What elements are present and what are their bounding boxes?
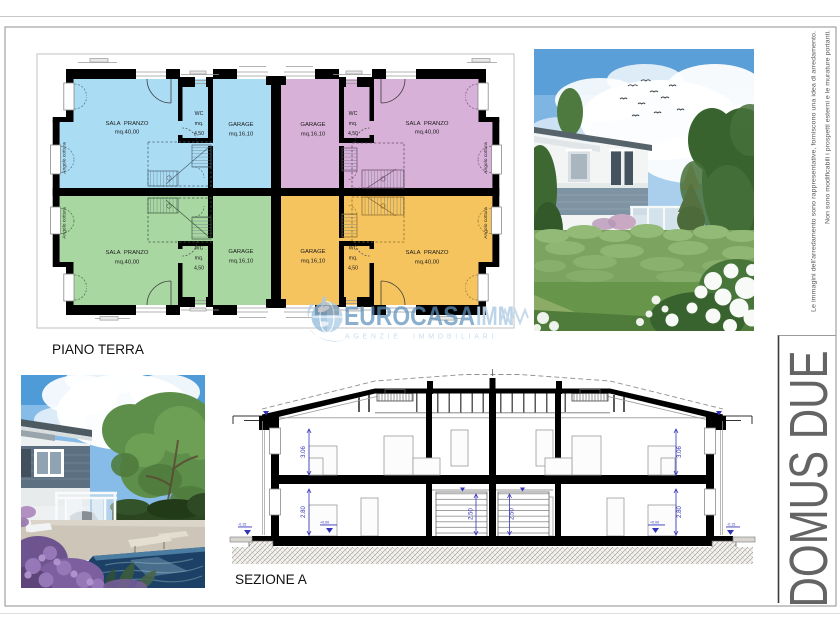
svg-text:mq.40,00: mq.40,00 — [415, 260, 440, 266]
svg-text:SALA PRANZO: SALA PRANZO — [406, 121, 449, 127]
svg-text:2.50: 2.50 — [469, 508, 475, 520]
svg-text:-0.15: -0.15 — [727, 523, 735, 527]
svg-text:SALA PRANZO: SALA PRANZO — [406, 250, 449, 256]
svg-text:WC: WC — [195, 111, 204, 117]
svg-text:WC: WC — [349, 246, 358, 252]
svg-text:3.06: 3.06 — [301, 446, 307, 458]
svg-text:4,50: 4,50 — [348, 266, 358, 272]
svg-text:Le immagini dell'arredamento s: Le immagini dell'arredamento sono rappre… — [811, 31, 818, 312]
svg-text:mq.16,10: mq.16,10 — [301, 259, 326, 265]
svg-text:GARAGE: GARAGE — [300, 122, 325, 128]
svg-text:SALA PRANZO: SALA PRANZO — [106, 250, 149, 256]
svg-text:WC: WC — [349, 111, 358, 117]
svg-text:mq.: mq. — [349, 121, 358, 127]
svg-text:mq.: mq. — [195, 256, 204, 262]
svg-text:GARAGE: GARAGE — [300, 249, 325, 255]
svg-text:4,50: 4,50 — [348, 131, 358, 137]
svg-text:Angolo cottura: Angolo cottura — [483, 207, 489, 239]
svg-text:2.80: 2.80 — [301, 506, 307, 518]
svg-text:3.06: 3.06 — [677, 446, 683, 458]
svg-text:GARAGE: GARAGE — [228, 249, 253, 255]
svg-text:mq.16,10: mq.16,10 — [229, 259, 254, 265]
svg-text:mq.16,10: mq.16,10 — [301, 132, 326, 138]
svg-text:mq.16,10: mq.16,10 — [229, 132, 254, 138]
svg-text:+0.00: +0.00 — [650, 521, 659, 525]
svg-text:mq.40,00: mq.40,00 — [115, 130, 140, 136]
svg-text:EUROCASA: EUROCASA — [344, 301, 475, 331]
svg-text:mq.: mq. — [195, 121, 204, 127]
svg-text:GARAGE: GARAGE — [228, 122, 253, 128]
svg-text:4,50: 4,50 — [194, 266, 204, 272]
svg-text:SALA PRANZO: SALA PRANZO — [106, 121, 149, 127]
svg-text:Non sono modificabili i prospe: Non sono modificabili i prospetti estern… — [825, 30, 832, 224]
svg-text:DOMUS DUE: DOMUS DUE — [779, 351, 839, 608]
svg-text:mq.40,00: mq.40,00 — [415, 130, 440, 136]
svg-text:+0.00: +0.00 — [320, 521, 329, 525]
svg-text:Angolo cottura: Angolo cottura — [62, 142, 68, 174]
svg-text:AGENZIE IMMOBILIARI: AGENZIE IMMOBILIARI — [345, 334, 497, 341]
svg-text:2.50: 2.50 — [510, 508, 516, 520]
svg-text:-0.15: -0.15 — [238, 523, 246, 527]
svg-text:mq.40,00: mq.40,00 — [115, 260, 140, 266]
svg-text:2.80: 2.80 — [677, 506, 683, 518]
svg-text:mq.: mq. — [349, 256, 358, 262]
svg-text:WC: WC — [195, 246, 204, 252]
svg-text:PIANO TERRA: PIANO TERRA — [52, 342, 145, 357]
svg-text:4,50: 4,50 — [194, 131, 204, 137]
svg-text:Angolo cottura: Angolo cottura — [483, 142, 489, 174]
svg-text:Angolo cottura: Angolo cottura — [62, 207, 68, 239]
svg-text:SEZIONE A: SEZIONE A — [235, 572, 308, 587]
